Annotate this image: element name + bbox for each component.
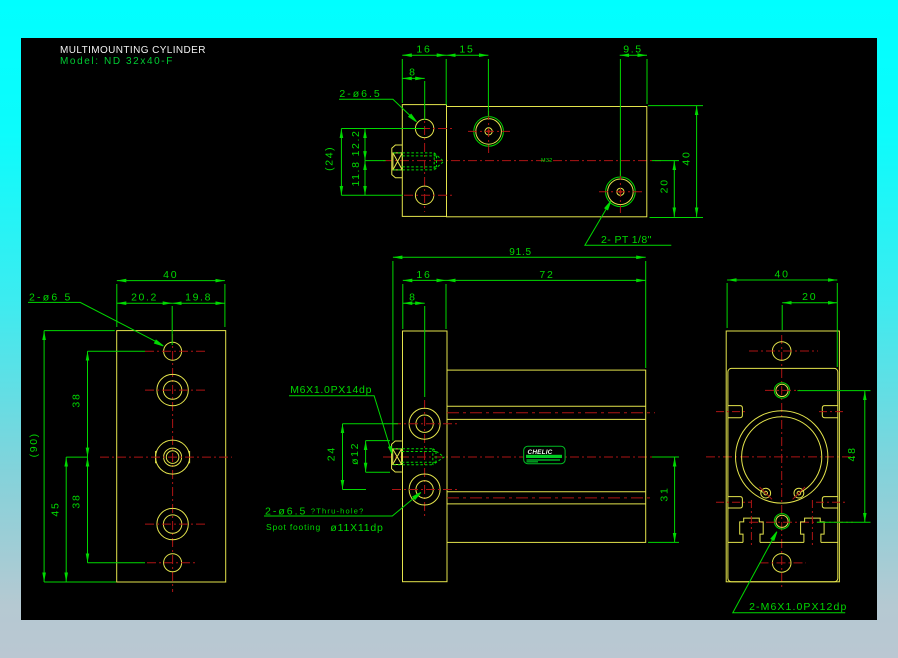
svg-text:91.5: 91.5 bbox=[509, 247, 532, 258]
svg-text:40: 40 bbox=[681, 150, 693, 165]
svg-text:M32: M32 bbox=[541, 158, 553, 164]
svg-text:20.2: 20.2 bbox=[131, 292, 158, 304]
svg-text:M6X1.0PX14dp: M6X1.0PX14dp bbox=[290, 384, 372, 396]
svg-text:2-ø6.5: 2-ø6.5 bbox=[339, 88, 381, 100]
svg-text:45: 45 bbox=[49, 501, 61, 516]
svg-text:8: 8 bbox=[409, 67, 415, 79]
svg-text:?Thru-hole?: ?Thru-hole? bbox=[311, 506, 365, 515]
svg-text:(90): (90) bbox=[28, 432, 40, 457]
svg-text:ø12: ø12 bbox=[349, 442, 361, 465]
svg-text:2-ø6.5: 2-ø6.5 bbox=[265, 506, 307, 518]
svg-text:38: 38 bbox=[71, 392, 83, 407]
svg-text:20: 20 bbox=[802, 291, 817, 303]
svg-text:20: 20 bbox=[658, 178, 670, 193]
svg-text:40: 40 bbox=[775, 269, 790, 281]
svg-text:19.8: 19.8 bbox=[185, 292, 212, 304]
svg-text:MULTIMOUNTING CYLINDER: MULTIMOUNTING CYLINDER bbox=[60, 45, 206, 56]
svg-text:40: 40 bbox=[163, 269, 178, 281]
svg-text:16: 16 bbox=[416, 269, 431, 281]
svg-text:72: 72 bbox=[539, 269, 554, 281]
svg-text:Model: ND 32x40-F: Model: ND 32x40-F bbox=[60, 56, 174, 67]
svg-text:15: 15 bbox=[459, 44, 474, 56]
svg-text:24: 24 bbox=[326, 446, 338, 461]
svg-text:2-ø6 5: 2-ø6 5 bbox=[29, 291, 73, 303]
svg-text:2-M6X1.0PX12dp: 2-M6X1.0PX12dp bbox=[749, 601, 847, 613]
svg-text:11.8: 11.8 bbox=[350, 160, 362, 186]
svg-text:12.2: 12.2 bbox=[350, 130, 362, 157]
svg-text:2- PT 1/8": 2- PT 1/8" bbox=[601, 234, 652, 246]
svg-text:8: 8 bbox=[409, 292, 415, 304]
svg-text:CHELIC: CHELIC bbox=[528, 449, 553, 456]
svg-text:38: 38 bbox=[71, 493, 83, 508]
svg-text:9.5: 9.5 bbox=[623, 44, 642, 56]
svg-text:48: 48 bbox=[846, 446, 858, 461]
svg-text:ø11X11dp: ø11X11dp bbox=[330, 522, 383, 534]
svg-text:16: 16 bbox=[416, 44, 431, 56]
svg-text:Spot footing: Spot footing bbox=[266, 522, 321, 532]
svg-text:31: 31 bbox=[659, 486, 671, 501]
svg-text:(24): (24) bbox=[324, 146, 336, 171]
